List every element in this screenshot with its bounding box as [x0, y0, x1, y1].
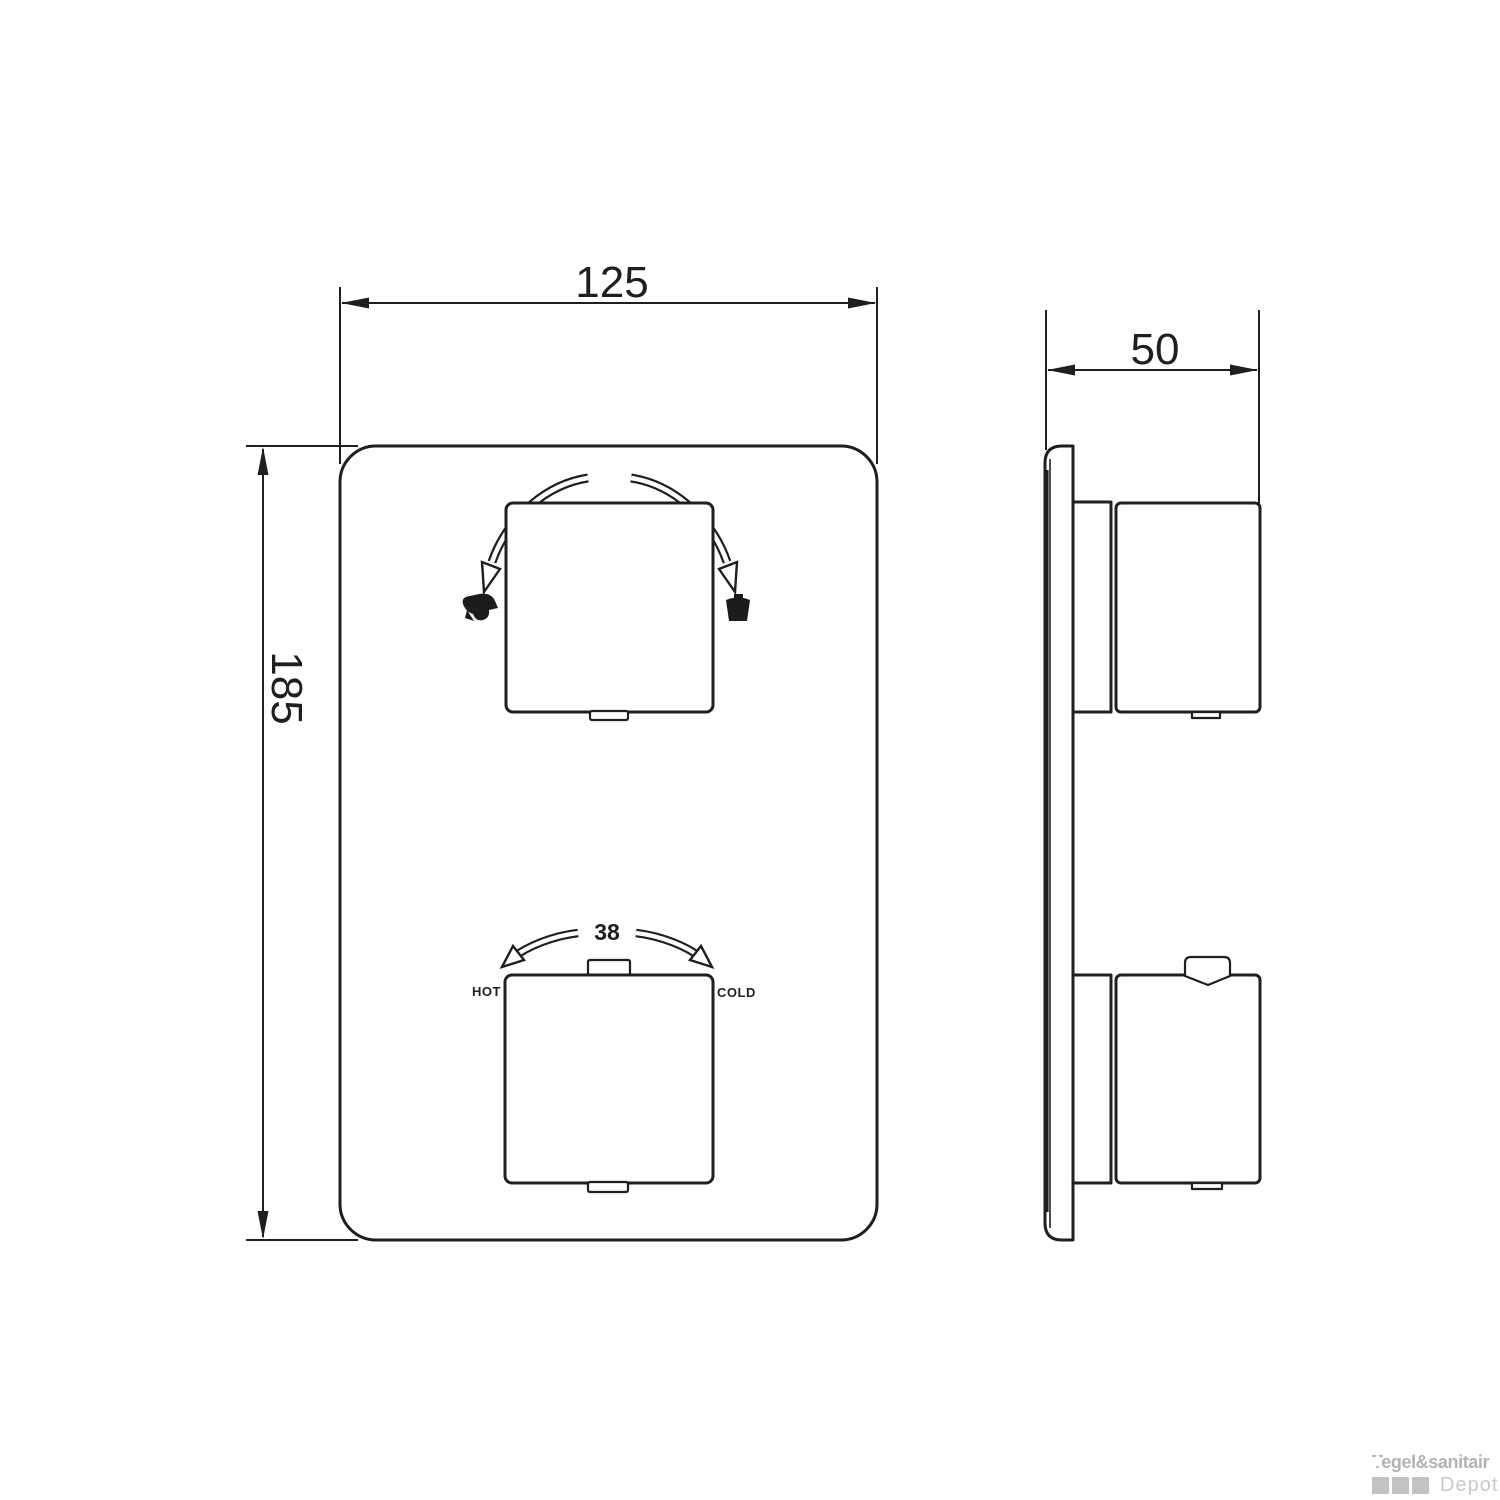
water-drop-icon — [1372, 1453, 1383, 1467]
depth-label: 50 — [1131, 325, 1180, 374]
arrowhead-left — [341, 298, 369, 309]
watermark-brand: Tegel&sanitair — [1372, 1453, 1489, 1471]
side-temp-cap — [1116, 975, 1260, 1183]
side-diverter-lip — [1192, 712, 1220, 718]
arrowhead-right — [1230, 365, 1258, 376]
temp-stop-label: 38 — [594, 919, 620, 945]
width-label: 125 — [575, 258, 648, 307]
valve-dimension-drawing: 125 185 — [0, 0, 1500, 1500]
arrowhead-down — [258, 1211, 269, 1239]
side-temperature-knob — [1073, 957, 1260, 1189]
temp-knob-bottom-tab — [588, 1182, 628, 1192]
temp-knob-face — [505, 975, 713, 1183]
side-diverter-knob — [1073, 502, 1260, 718]
side-diverter-base — [1073, 502, 1111, 712]
dim-depth: 50 — [1046, 310, 1259, 506]
watermark-subbrand: Depot — [1440, 1475, 1498, 1495]
cold-label: COLD — [717, 985, 756, 1000]
diverter-knob-face — [506, 503, 713, 712]
side-temp-lip — [1192, 1183, 1222, 1189]
arrowhead-left — [1047, 365, 1075, 376]
side-diverter-cap — [1116, 503, 1260, 712]
front-view: 125 185 — [246, 258, 877, 1240]
dim-width: 125 — [340, 258, 877, 464]
diverter-knob-bottom-tab — [590, 711, 628, 720]
hot-label: HOT — [472, 984, 501, 999]
watermark-square — [1412, 1477, 1429, 1494]
watermark-drop-square — [1372, 1477, 1389, 1494]
watermark-square — [1392, 1477, 1409, 1494]
side-view: 50 — [1045, 310, 1260, 1240]
technical-drawing-page: 125 185 — [0, 0, 1500, 1500]
watermark-logo-row: Depot — [1372, 1475, 1498, 1495]
side-temp-base — [1073, 975, 1111, 1183]
height-label: 185 — [262, 651, 311, 724]
arrowhead-up — [258, 447, 269, 475]
watermark: Tegel&sanitair Depot — [1372, 1453, 1498, 1495]
arrowhead-right — [848, 298, 876, 309]
diverter-knob — [463, 478, 750, 720]
